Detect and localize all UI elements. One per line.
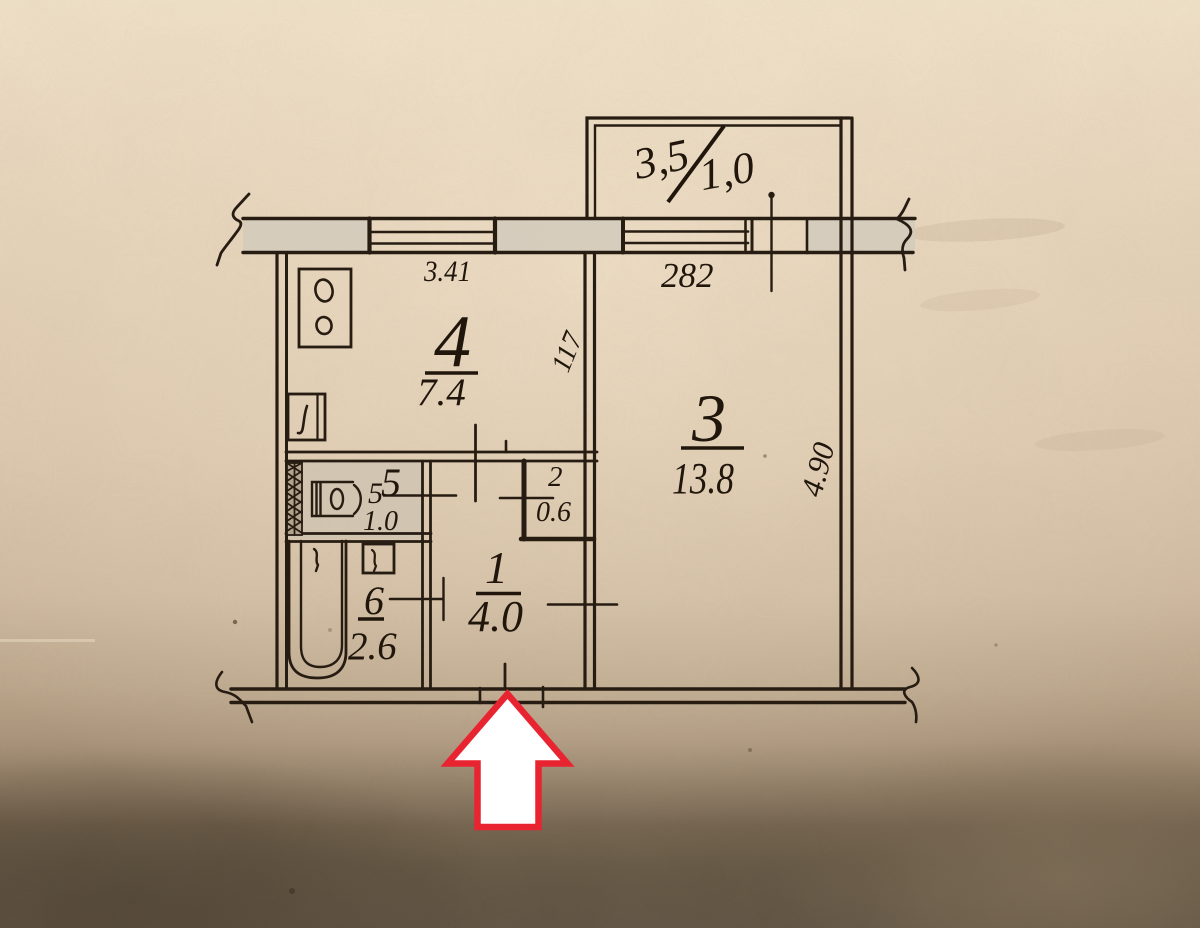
svg-text:4.0: 4.0 bbox=[468, 592, 523, 641]
svg-text:3: 3 bbox=[691, 380, 726, 456]
svg-text:0.6: 0.6 bbox=[536, 497, 571, 528]
svg-text:1,0: 1,0 bbox=[695, 142, 758, 200]
svg-text:282: 282 bbox=[661, 256, 714, 295]
svg-text:13.8: 13.8 bbox=[672, 454, 734, 503]
svg-text:6: 6 bbox=[364, 578, 384, 623]
svg-text:3.41: 3.41 bbox=[423, 255, 471, 288]
svg-text:2.6: 2.6 bbox=[348, 625, 397, 668]
svg-text:5: 5 bbox=[381, 460, 401, 505]
svg-text:2: 2 bbox=[548, 461, 563, 493]
svg-text:1: 1 bbox=[485, 542, 508, 593]
svg-text:7.4: 7.4 bbox=[417, 371, 466, 414]
svg-text:1.0: 1.0 bbox=[363, 506, 398, 537]
